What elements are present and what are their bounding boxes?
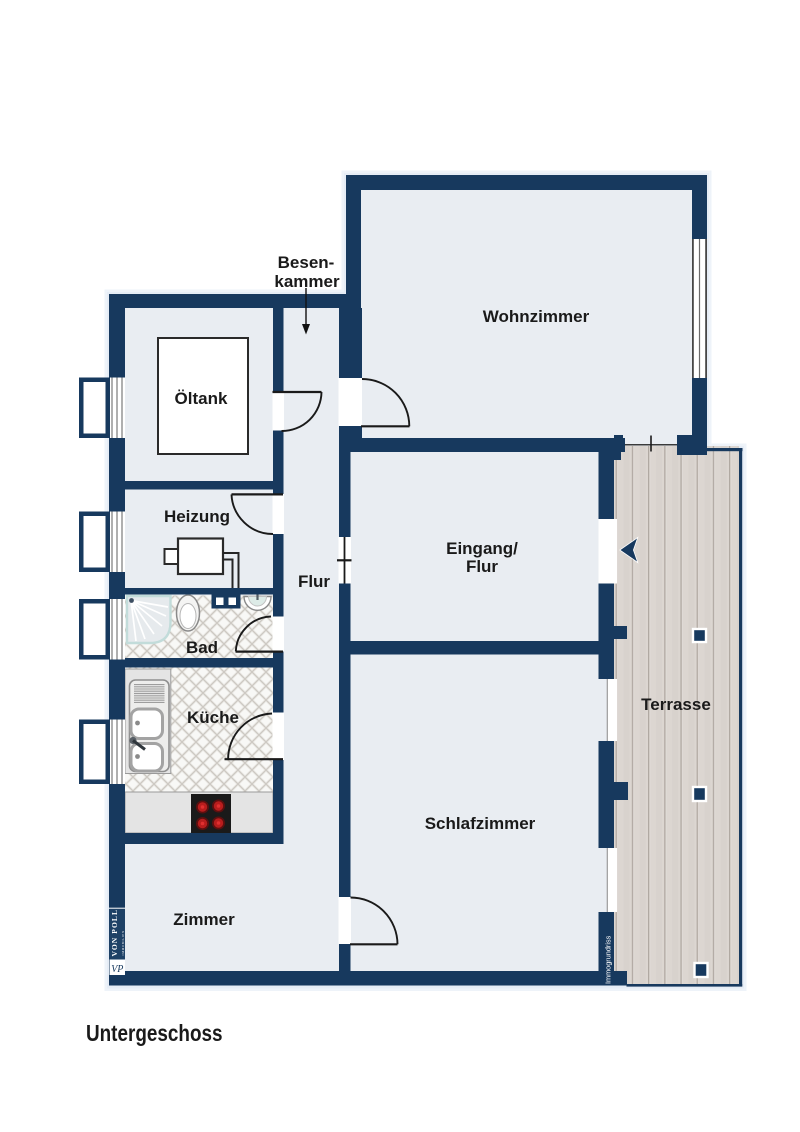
svg-text:Zimmer: Zimmer [173, 910, 235, 929]
svg-text:Wohnzimmer: Wohnzimmer [483, 307, 590, 326]
svg-text:Untergeschoss: Untergeschoss [86, 1020, 223, 1046]
svg-text:Eingang/: Eingang/ [446, 539, 518, 558]
svg-text:Öltank: Öltank [175, 389, 228, 408]
svg-text:Flur: Flur [466, 557, 498, 576]
svg-text:Küche: Küche [187, 708, 239, 727]
svg-text:Terrasse: Terrasse [641, 695, 711, 714]
svg-text:Besen-: Besen- [278, 253, 335, 272]
svg-text:Bad: Bad [186, 638, 218, 657]
svg-text:Immogrundriss: Immogrundriss [604, 935, 613, 984]
svg-text:kammer: kammer [274, 272, 340, 291]
svg-text:Schlafzimmer: Schlafzimmer [425, 814, 536, 833]
svg-text:Flur: Flur [298, 572, 330, 591]
svg-text:VP: VP [111, 964, 123, 975]
svg-text:Heizung: Heizung [164, 507, 230, 526]
svg-text:VON POLL: VON POLL [110, 909, 119, 957]
svg-text:IMMOBILIEN: IMMOBILIEN [121, 930, 125, 955]
